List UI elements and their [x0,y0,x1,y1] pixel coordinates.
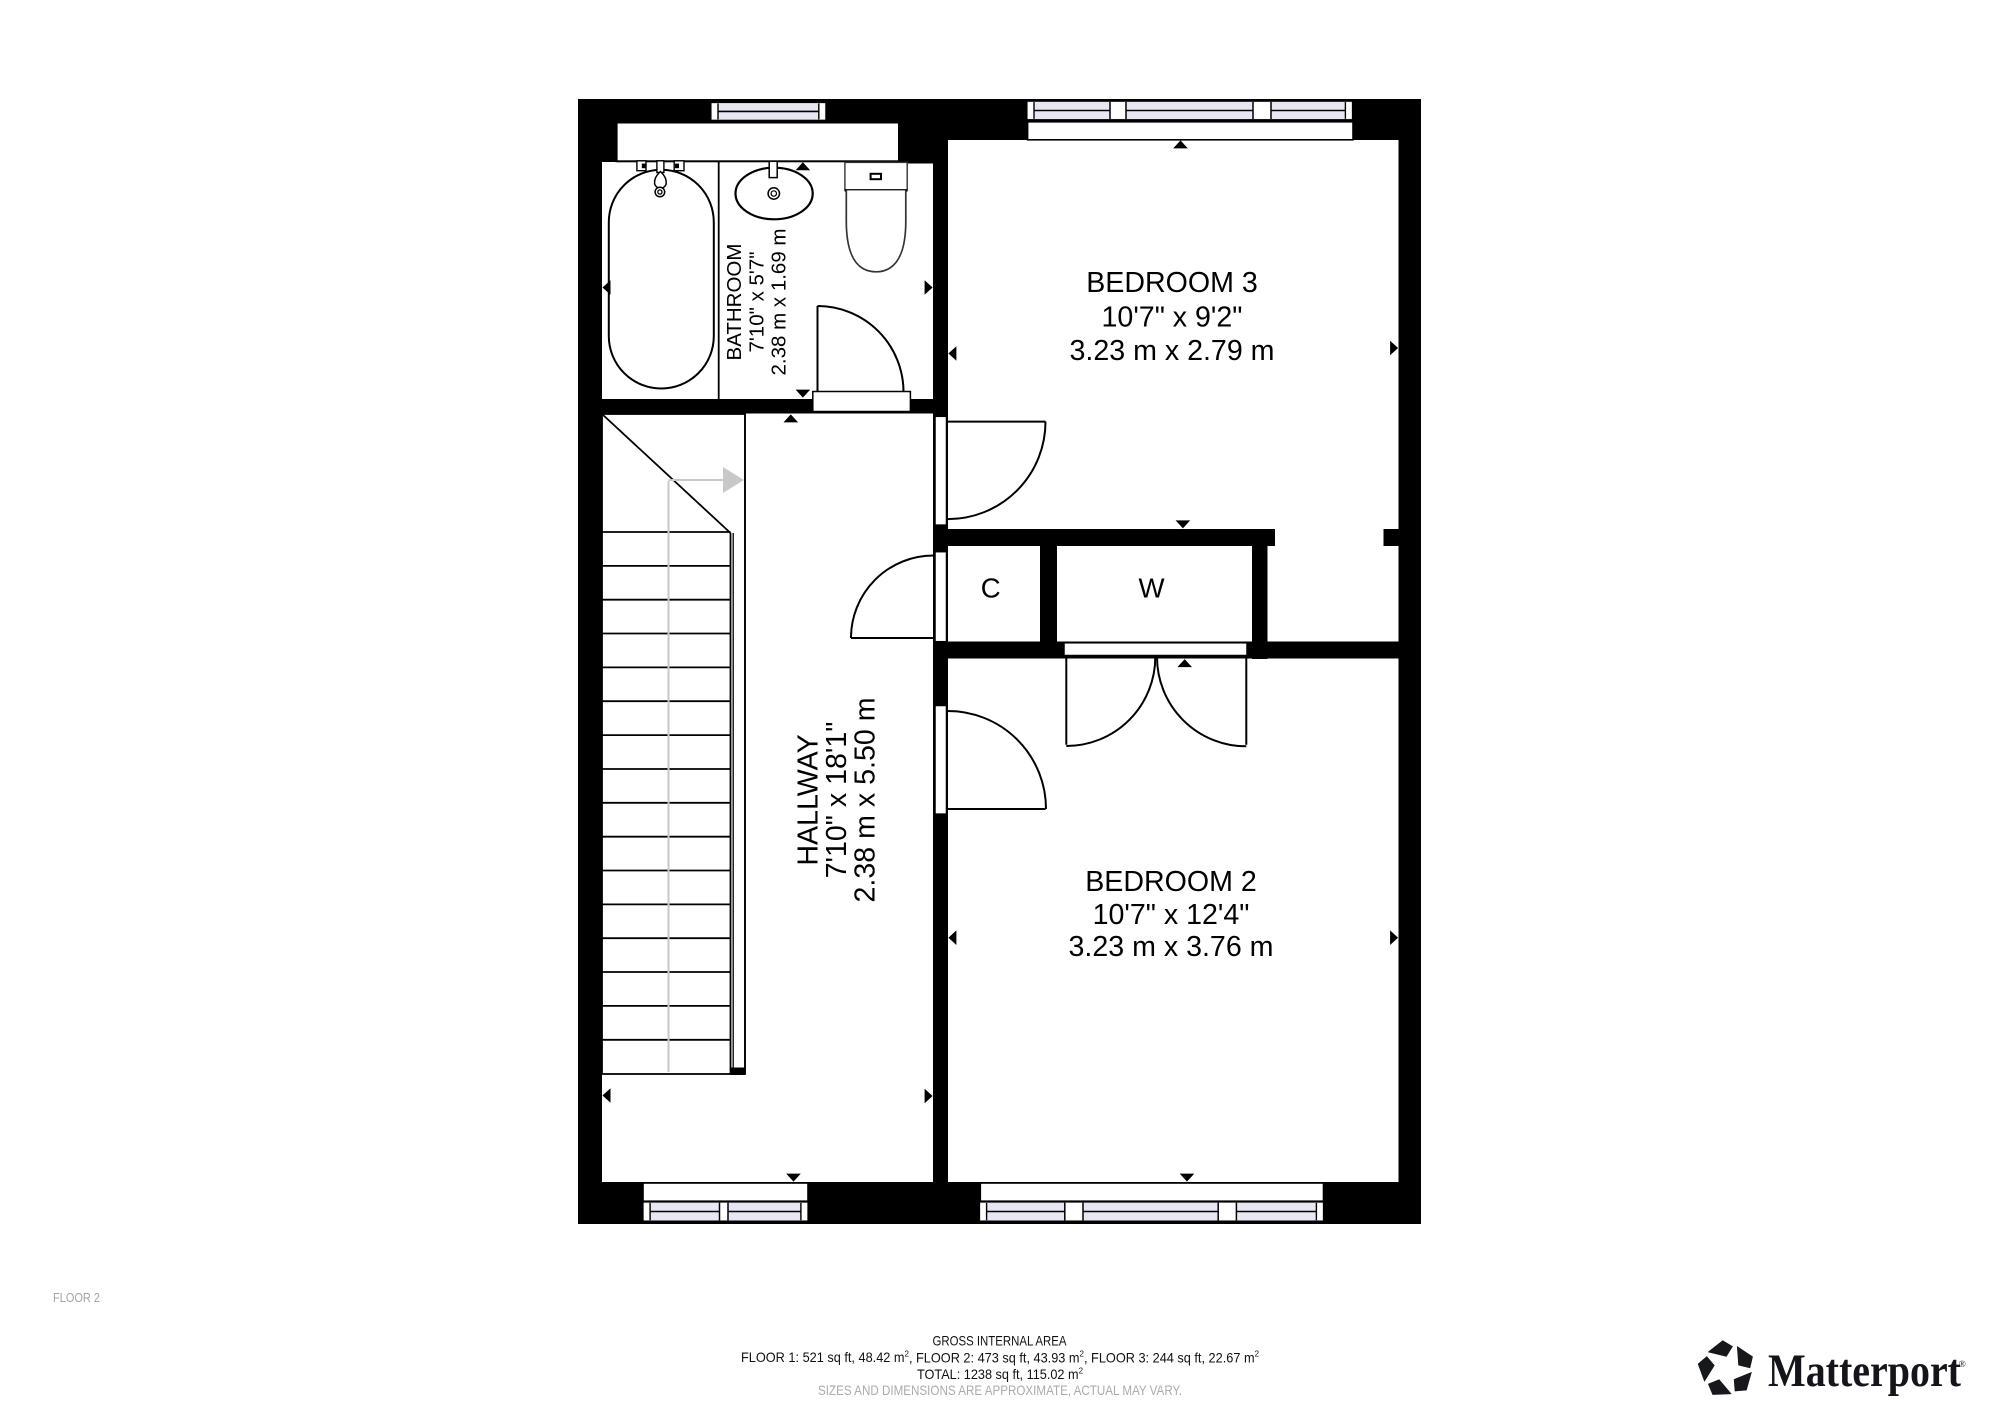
svg-text:FLOOR 1: 521 sq ft, 48.42 m2,: FLOOR 1: 521 sq ft, 48.42 m2, FLOOR 2: 4… [741,1349,1259,1366]
svg-text:3.23 m x 3.76 m: 3.23 m x 3.76 m [1068,931,1273,963]
svg-text:BEDROOM 3: BEDROOM 3 [1086,267,1258,299]
svg-text:7'10" x 5'7": 7'10" x 5'7" [745,251,768,352]
svg-text:10'7" x 9'2": 10'7" x 9'2" [1102,302,1243,334]
svg-text:2.38 m x 1.69 m: 2.38 m x 1.69 m [768,229,791,376]
svg-text:SIZES AND DIMENSIONS ARE APPRO: SIZES AND DIMENSIONS ARE APPROXIMATE, AC… [818,1383,1182,1398]
svg-text:BEDROOM 2: BEDROOM 2 [1085,866,1257,898]
svg-text:TOTAL: 1238 sq ft, 115.02 m2: TOTAL: 1238 sq ft, 115.02 m2 [917,1365,1083,1382]
svg-text:W: W [1138,573,1164,604]
svg-text:GROSS INTERNAL AREA: GROSS INTERNAL AREA [933,1334,1068,1349]
svg-text:HALLWAY: HALLWAY [792,734,824,865]
svg-text:Matterport: Matterport [1768,1345,1961,1397]
svg-text:3.23 m x 2.79 m: 3.23 m x 2.79 m [1069,335,1274,367]
svg-text:C: C [981,573,1001,604]
svg-text:FLOOR 2: FLOOR 2 [53,1290,100,1305]
svg-text:BATHROOM: BATHROOM [723,244,746,361]
svg-text:10'7" x 12'4": 10'7" x 12'4" [1093,899,1250,931]
svg-text:7'10" x 18'1": 7'10" x 18'1" [821,722,853,879]
svg-text:2.38 m x 5.50 m: 2.38 m x 5.50 m [850,697,882,902]
svg-text:®: ® [1959,1359,1966,1370]
